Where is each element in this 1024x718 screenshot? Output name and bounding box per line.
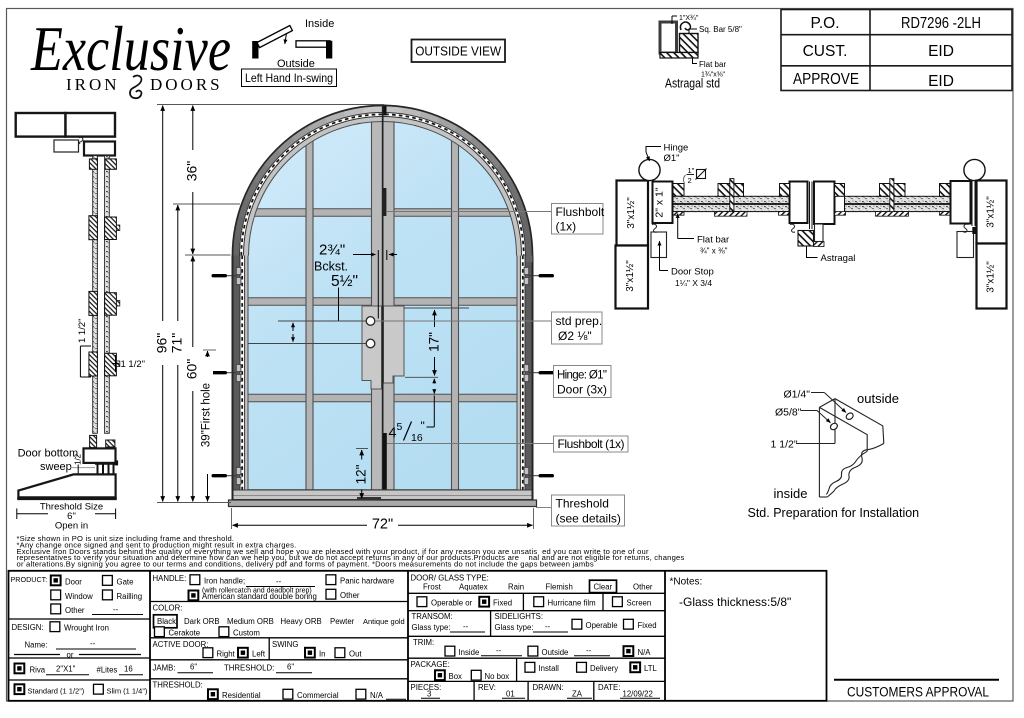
svg-text:2"X1": 2"X1"	[56, 665, 76, 674]
svg-text:Standard (1 1/2”): Standard (1 1/2”)	[28, 687, 85, 696]
svg-text:Wrought Iron: Wrought Iron	[64, 624, 109, 633]
svg-text:N/A: N/A	[370, 691, 384, 700]
svg-text:ACTIVE DOOR:: ACTIVE DOOR:	[153, 640, 209, 649]
svg-text:Medium ORB: Medium ORB	[227, 617, 274, 626]
svg-text:Flat bar: Flat bar	[699, 60, 726, 69]
svg-text:16: 16	[124, 665, 133, 674]
svg-text:Railling: Railling	[117, 592, 143, 601]
svg-text:(see details): (see details)	[556, 512, 621, 526]
svg-text:Sq. Bar 5/8": Sq. Bar 5/8"	[699, 25, 742, 34]
svg-text:3: 3	[427, 690, 431, 699]
svg-text:3"x1½": 3"x1½"	[626, 197, 637, 229]
svg-text:Door (3x): Door (3x)	[557, 383, 607, 397]
svg-text:CUST.: CUST.	[803, 43, 848, 60]
svg-text:Rain: Rain	[508, 583, 524, 592]
svg-text:PACKAGE:: PACKAGE:	[411, 660, 450, 669]
svg-text:36": 36"	[184, 161, 200, 182]
svg-text:Flemish: Flemish	[546, 583, 573, 592]
svg-text:Exclusive: Exclusive	[30, 14, 231, 84]
svg-text:Fixed: Fixed	[493, 599, 512, 608]
svg-text:Inside: Inside	[459, 648, 480, 657]
svg-text:Flushbolt: Flushbolt	[556, 205, 605, 219]
svg-text:Commercial: Commercial	[297, 691, 339, 700]
svg-text:Out: Out	[349, 650, 362, 659]
svg-text:Frost: Frost	[423, 583, 442, 592]
svg-text:APPROVE: APPROVE	[793, 71, 859, 88]
svg-text:1 1/2": 1 1/2"	[77, 318, 88, 343]
svg-text:6": 6"	[190, 663, 197, 672]
svg-text:Hinge: Ø1": Hinge: Ø1"	[557, 370, 607, 382]
svg-text:01: 01	[506, 690, 515, 699]
svg-text:Other: Other	[65, 606, 85, 615]
svg-text:RD7296 -2LH: RD7296 -2LH	[901, 15, 981, 32]
svg-text:#Lites: #Lites	[97, 666, 118, 675]
svg-text:Iron handle;: Iron handle;	[204, 577, 245, 586]
svg-text:3"x1½": 3"x1½"	[986, 261, 997, 293]
svg-text:Right: Right	[217, 650, 236, 659]
svg-text:Cerakote: Cerakote	[169, 629, 201, 638]
svg-text:Antique gold: Antique gold	[363, 617, 405, 626]
svg-text:2: 2	[688, 176, 692, 185]
svg-text:Hurricane film: Hurricane film	[548, 599, 596, 608]
svg-text:Astragal: Astragal	[821, 253, 856, 264]
svg-text:12/09/22: 12/09/22	[623, 690, 653, 699]
svg-text:Riva: Riva	[30, 666, 46, 675]
svg-text:Residential: Residential	[222, 691, 261, 700]
svg-text:17": 17"	[426, 332, 441, 352]
svg-text:5: 5	[397, 421, 403, 433]
svg-text:Install: Install	[539, 664, 560, 673]
svg-text:Ø2 ⅛": Ø2 ⅛"	[558, 329, 592, 343]
svg-text:Gate: Gate	[117, 578, 134, 587]
svg-text:SWING: SWING	[272, 640, 298, 649]
svg-text:Left: Left	[252, 650, 266, 659]
svg-text:Ø5/8": Ø5/8"	[775, 407, 802, 419]
svg-text:96": 96"	[154, 333, 170, 354]
svg-text:60": 60"	[184, 359, 200, 380]
svg-text:1": 1"	[688, 166, 695, 175]
svg-text:3"x1½": 3"x1½"	[625, 260, 636, 292]
svg-text:*Notes:: *Notes:	[670, 577, 703, 588]
svg-text:Astragal std: Astragal std	[665, 77, 720, 91]
svg-text:--: --	[113, 605, 119, 614]
svg-text:DATE:: DATE:	[598, 683, 620, 692]
svg-text:Operable or: Operable or	[431, 599, 473, 608]
svg-text:Threshold: Threshold	[556, 497, 609, 511]
svg-text:Hinge: Hinge	[664, 143, 689, 154]
svg-text:2" x 1": 2" x 1"	[654, 187, 666, 217]
svg-text:REV:: REV:	[478, 683, 496, 692]
svg-text:Window: Window	[65, 592, 93, 601]
svg-text:Aquatex: Aquatex	[459, 583, 488, 592]
svg-text:Glass type:: Glass type:	[495, 623, 534, 632]
svg-text:Custom: Custom	[233, 629, 260, 638]
svg-text:Ø1": Ø1"	[664, 153, 680, 164]
svg-text:71": 71"	[169, 333, 185, 354]
svg-text:HANDLE:: HANDLE:	[153, 574, 187, 583]
svg-text:or alterations.By signing you: or alterations.By signing you agree to o…	[17, 560, 594, 569]
svg-text:--: --	[463, 622, 469, 631]
svg-text:American standard double borin: American standard double boring	[202, 592, 317, 601]
svg-text:Name:: Name:	[25, 641, 48, 650]
svg-text:Ø1/4": Ø1/4"	[784, 389, 811, 401]
svg-text:In: In	[319, 650, 326, 659]
svg-text:No box: No box	[485, 672, 510, 681]
svg-text:std prep.: std prep.	[556, 314, 603, 328]
svg-text:EID: EID	[928, 73, 954, 90]
svg-text:Dark ORB: Dark ORB	[184, 617, 220, 626]
svg-text:2¾": 2¾"	[319, 242, 345, 259]
svg-text:Std. Preparation for Installat: Std. Preparation for Installation	[748, 506, 920, 520]
svg-text:PIECES:: PIECES:	[411, 683, 442, 692]
svg-text:--: --	[276, 577, 282, 586]
svg-text:ZA: ZA	[572, 690, 583, 699]
svg-text:Pewter: Pewter	[330, 617, 355, 626]
svg-text:Screen: Screen	[627, 599, 652, 608]
svg-text:inside: inside	[774, 486, 808, 501]
svg-text:Outside: Outside	[277, 58, 315, 70]
svg-text:CUSTOMERS APPROVAL: CUSTOMERS APPROVAL	[847, 685, 989, 700]
svg-text:-Glass thickness:5/8": -Glass thickness:5/8"	[679, 595, 791, 609]
svg-text:THRESHOLD:: THRESHOLD:	[153, 681, 203, 690]
svg-text:Outside: Outside	[542, 648, 569, 657]
svg-text:--: --	[496, 646, 502, 655]
svg-text:THRESHOLD:: THRESHOLD:	[224, 664, 274, 673]
svg-text:Open in: Open in	[55, 521, 88, 532]
svg-text:Panic hardware: Panic hardware	[340, 577, 394, 586]
svg-text:3"x1½": 3"x1½"	[986, 196, 997, 228]
svg-text:Operable: Operable	[586, 621, 618, 630]
svg-text:Door bottom: Door bottom	[18, 448, 79, 460]
svg-text:": "	[421, 419, 425, 433]
svg-text:Delivery: Delivery	[590, 664, 618, 673]
svg-text:Fixed: Fixed	[638, 621, 657, 630]
svg-text:6": 6"	[287, 663, 294, 672]
svg-text:IRON: IRON	[66, 75, 120, 94]
svg-text:Other: Other	[633, 583, 653, 592]
svg-text:--: --	[586, 646, 592, 655]
svg-text:1"X¾": 1"X¾"	[679, 15, 699, 22]
svg-text:Door: Door	[65, 578, 82, 587]
svg-text:4: 4	[389, 426, 397, 442]
svg-text:(1x): (1x)	[556, 220, 577, 234]
svg-text:--: --	[545, 622, 551, 631]
svg-text:16: 16	[411, 432, 423, 444]
svg-text:or: or	[67, 651, 74, 660]
svg-text:outside: outside	[857, 391, 899, 406]
svg-text:DESIGN:: DESIGN:	[12, 623, 44, 632]
svg-text:JAMB:: JAMB:	[153, 664, 176, 673]
svg-text:72": 72"	[372, 517, 393, 533]
svg-text:SIDELIGHTS:: SIDELIGHTS:	[495, 612, 544, 621]
svg-text:Bckst.: Bckst.	[314, 260, 348, 274]
svg-text:Other: Other	[340, 591, 360, 600]
svg-text:5½": 5½"	[331, 273, 358, 290]
svg-text:P.O.: P.O.	[810, 15, 839, 32]
svg-text:sweep: sweep	[40, 461, 72, 473]
svg-text:1/2: 1/2	[74, 453, 83, 465]
svg-text:1 1/2": 1 1/2"	[121, 359, 146, 370]
svg-text:Left Hand In-swing: Left Hand In-swing	[245, 71, 333, 85]
svg-text:1 1/2": 1 1/2"	[771, 439, 798, 451]
svg-text:Heavy ORB: Heavy ORB	[281, 617, 322, 626]
svg-text:N/A: N/A	[638, 648, 652, 657]
svg-text:Black: Black	[157, 617, 176, 626]
svg-text:TRIM:: TRIM:	[413, 638, 434, 647]
svg-text:12": 12"	[353, 464, 368, 484]
svg-text:DOOR/ GLASS TYPE:: DOOR/ GLASS TYPE:	[411, 574, 489, 583]
svg-text:Slim (1 1/4”): Slim (1 1/4”)	[107, 687, 148, 696]
svg-text:39"First hole: 39"First hole	[201, 383, 213, 447]
svg-text:Inside: Inside	[305, 18, 334, 30]
svg-text:OUTSIDE VIEW: OUTSIDE VIEW	[415, 44, 502, 59]
svg-text:DOORS: DOORS	[150, 75, 223, 94]
svg-text:DRAWN:: DRAWN:	[533, 683, 564, 692]
svg-text:Flat bar: Flat bar	[697, 235, 729, 246]
svg-text:PRODUCT:: PRODUCT:	[11, 575, 48, 584]
svg-text:Box: Box	[449, 672, 463, 681]
svg-text:COLOR:: COLOR:	[153, 604, 183, 613]
svg-text:Door Stop: Door Stop	[671, 267, 714, 278]
svg-text:Clear: Clear	[594, 583, 613, 592]
svg-text:--: --	[90, 639, 96, 648]
svg-text:Flushbolt (1x): Flushbolt (1x)	[558, 437, 625, 451]
svg-text:¾" x ⅜": ¾" x ⅜"	[700, 247, 728, 256]
svg-text:1¼" X 3/4: 1¼" X 3/4	[675, 278, 712, 288]
svg-text:Glass type:: Glass type:	[412, 623, 451, 632]
svg-text:LTL: LTL	[644, 664, 658, 673]
svg-text:EID: EID	[928, 43, 954, 60]
svg-text:TRANSOM:: TRANSOM:	[412, 612, 453, 621]
